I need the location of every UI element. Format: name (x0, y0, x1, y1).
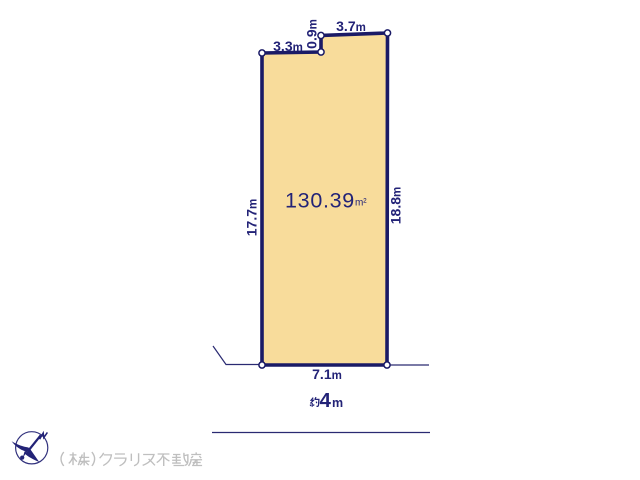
svg-text:4: 4 (320, 389, 332, 412)
svg-text:m: m (332, 396, 343, 410)
svg-text:130.39m²: 130.39m² (285, 189, 367, 213)
